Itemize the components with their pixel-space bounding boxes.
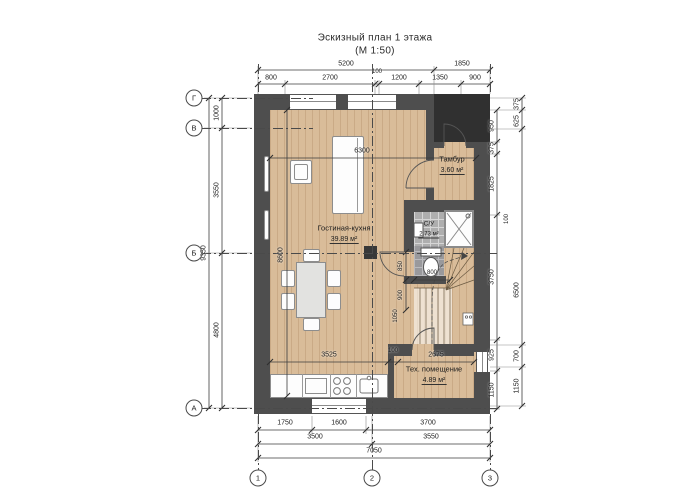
dimension-geometry xyxy=(204,66,526,462)
axis-bubble-a: А xyxy=(186,400,203,417)
axis-bubble-2: 2 xyxy=(364,470,381,487)
dim-label: 900 xyxy=(469,75,481,82)
dim-label: 1200 xyxy=(391,75,407,82)
dim-label: 700 xyxy=(514,350,521,362)
dim-label: 1150 xyxy=(514,378,521,393)
stove-icon xyxy=(334,378,351,395)
axis-line-1-top xyxy=(258,64,259,94)
dim-label: 1350 xyxy=(432,75,448,82)
drawing-overlay xyxy=(0,0,697,502)
dim-label: 9350 xyxy=(201,245,208,261)
room-area-wc: 2.73 м² xyxy=(418,232,439,239)
dim-label: 925 xyxy=(489,349,496,361)
dim-label: 1050 xyxy=(393,309,399,322)
shower-icon xyxy=(447,213,471,245)
dim-label: 800 xyxy=(427,270,437,276)
dim-label: 8600 xyxy=(278,247,285,263)
axis-line-2 xyxy=(372,64,373,471)
dim-label: 7050 xyxy=(366,448,382,455)
axis-bubble-g: Г xyxy=(186,90,203,107)
axis-bubble-v: В xyxy=(186,120,203,137)
dim-label: 100 xyxy=(388,348,398,354)
room-label-wc: С/У xyxy=(424,221,435,228)
room-area-tech: 4.89 м² xyxy=(422,377,447,385)
room-label-living: Гостиная-кухня xyxy=(317,224,370,233)
dim-label: 625 xyxy=(514,115,521,127)
room-label-tech: Тех. помещение xyxy=(406,365,462,374)
dim-label: 1750 xyxy=(277,420,293,427)
dim-label: 1850 xyxy=(454,61,470,68)
dim-label: 1000 xyxy=(214,105,221,121)
room-area-living: 39.89 м² xyxy=(330,236,359,244)
stairs xyxy=(414,248,474,344)
dim-label: 1600 xyxy=(331,420,347,427)
dim-label: 2675 xyxy=(428,352,444,359)
axis-line-1-bottom xyxy=(258,414,259,471)
dim-label: 2700 xyxy=(322,75,338,82)
axis-bubble-1: 1 xyxy=(250,470,267,487)
dim-label: 800 xyxy=(265,75,277,82)
dim-label: 6500 xyxy=(514,282,521,298)
floor-plan-sheet: Эскизный план 1 этажа (М 1:50) xyxy=(0,0,697,502)
dim-label: 100 xyxy=(372,69,382,75)
dim-label: 3525 xyxy=(321,352,337,359)
axis-bubble-3: 3 xyxy=(482,470,499,487)
room-area-tambour: 3.60 м² xyxy=(440,167,465,175)
tech-door-arc xyxy=(412,328,434,350)
kitchen-sink-icon xyxy=(360,376,378,393)
axis-line-a xyxy=(201,408,497,409)
dim-label: 1150 xyxy=(489,382,496,397)
dim-label: 100 xyxy=(504,214,510,224)
dim-label: 375 xyxy=(489,142,496,154)
entry-door-arc xyxy=(444,124,466,146)
dim-label: 3500 xyxy=(307,434,323,441)
dim-label: 850 xyxy=(398,261,404,271)
dim-label: 3750 xyxy=(489,269,496,285)
tambour-door-arc xyxy=(406,160,434,188)
dim-label: 3550 xyxy=(214,182,221,198)
axis-line-3-top xyxy=(490,64,491,94)
dim-label: 950 xyxy=(489,120,496,132)
room-label-tambour: Тамбур xyxy=(439,155,464,164)
dim-label: 3700 xyxy=(420,420,436,427)
dim-label: 375 xyxy=(514,98,521,110)
dim-label: 5200 xyxy=(338,61,354,68)
axis-line-b xyxy=(201,253,497,254)
dim-label: 6300 xyxy=(354,148,370,155)
dim-label: 1825 xyxy=(489,176,496,192)
axis-line-g xyxy=(201,98,313,99)
axis-line-v xyxy=(201,128,313,129)
dim-label: 900 xyxy=(398,290,404,300)
dim-label: 4800 xyxy=(214,322,221,338)
axis-line-3-bottom xyxy=(490,414,491,471)
dim-label: 3550 xyxy=(423,434,439,441)
